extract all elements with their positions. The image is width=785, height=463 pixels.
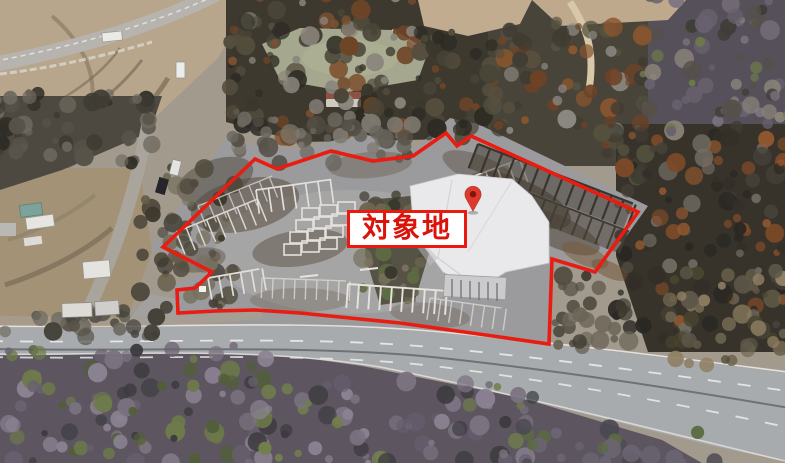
tree-blob: [551, 428, 562, 439]
tree-blob: [526, 391, 539, 404]
tree-blob: [292, 56, 300, 64]
tree-blob: [280, 424, 292, 436]
tree-blob: [61, 122, 73, 134]
tree-blob: [402, 265, 409, 272]
tree-blob: [762, 104, 777, 119]
parking-stall-line: [283, 279, 284, 299]
tree-blob: [558, 110, 577, 129]
tree-blob: [391, 191, 401, 201]
tree-blob: [121, 351, 132, 362]
tree-blob: [325, 455, 333, 463]
tree-blob: [602, 148, 613, 159]
tree-blob: [704, 244, 717, 257]
tree-blob: [659, 187, 667, 195]
tree-blob: [91, 90, 110, 109]
tree-blob: [406, 412, 425, 431]
tree-blob: [33, 311, 48, 326]
tree-blob: [421, 35, 428, 42]
tree-blob: [69, 402, 82, 415]
tree-blob: [618, 144, 630, 156]
tree-blob: [115, 154, 128, 167]
tree-blob: [723, 178, 735, 190]
tree-blob: [294, 450, 301, 457]
tree-blob: [510, 387, 526, 403]
tree-blob: [246, 361, 257, 372]
tree-blob: [390, 34, 397, 41]
tree-blob: [385, 266, 398, 279]
tree-blob: [709, 64, 715, 70]
tree-blob: [751, 194, 761, 204]
tree-blob: [88, 363, 107, 382]
tree-blob: [611, 102, 625, 116]
tree-blob: [157, 257, 174, 274]
tree-blob: [325, 155, 342, 172]
tree-blob: [699, 358, 714, 373]
tree-blob: [95, 414, 107, 426]
tree-blob: [581, 271, 591, 281]
tree-blob: [397, 47, 415, 65]
tree-blob: [275, 454, 283, 462]
tree-blob: [575, 442, 584, 451]
structure: [95, 300, 120, 316]
tree-blob: [778, 159, 785, 166]
parking-stall-line: [272, 278, 273, 298]
tree-blob: [141, 195, 150, 204]
tree-blob: [184, 407, 193, 416]
tree-blob: [746, 173, 760, 187]
tree-blob: [740, 339, 752, 351]
tree-blob: [486, 403, 492, 409]
tree-blob: [651, 28, 664, 41]
tree-blob: [381, 77, 388, 84]
tree-blob: [718, 27, 731, 40]
tree-blob: [428, 440, 434, 446]
tree-blob: [61, 423, 78, 440]
tree-blob: [506, 127, 513, 134]
tree-blob: [606, 46, 617, 57]
parking-stall-line: [338, 281, 339, 301]
tree-blob: [226, 105, 240, 119]
tree-blob: [117, 387, 130, 400]
tree-blob: [222, 79, 238, 95]
tree-blob: [732, 199, 745, 212]
tree-blob: [625, 272, 643, 290]
tree-blob: [762, 219, 771, 228]
tree-blob: [86, 134, 102, 150]
tree-blob: [342, 409, 353, 420]
tree-blob: [423, 445, 438, 460]
tree-blob: [573, 334, 587, 348]
tree-blob: [134, 363, 150, 379]
tree-blob: [558, 281, 567, 290]
tree-blob: [255, 89, 263, 97]
parking-stall-line: [294, 279, 295, 299]
tree-blob: [258, 442, 271, 455]
tree-blob: [649, 145, 656, 152]
tree-blob: [530, 70, 547, 87]
tree-blob: [727, 8, 743, 24]
tree-blob: [721, 355, 730, 364]
tree-blob: [171, 381, 179, 389]
tree-blob: [116, 414, 124, 422]
tree-blob: [698, 294, 710, 306]
tree-blob: [581, 121, 588, 128]
tree-blob: [280, 124, 300, 144]
tree-blob: [209, 346, 224, 361]
tree-blob: [580, 44, 594, 58]
tree-blob: [595, 315, 612, 332]
tree-blob: [689, 80, 696, 87]
tree-blob: [209, 298, 219, 308]
tree-blob: [541, 63, 548, 70]
tree-blob: [611, 335, 619, 343]
tree-blob: [271, 40, 279, 48]
tree-blob: [54, 112, 61, 119]
tree-blob: [131, 282, 150, 301]
tree-blob: [551, 20, 561, 30]
tree-blob: [494, 121, 503, 130]
tree-blob: [128, 407, 137, 416]
tree-blob: [683, 311, 699, 327]
tree-blob: [272, 22, 290, 40]
tree-blob: [734, 275, 753, 294]
tree-blob: [629, 132, 636, 139]
tree-blob: [767, 336, 779, 348]
tree-blob: [457, 375, 474, 392]
tree-blob: [642, 169, 652, 179]
tree-blob: [24, 127, 32, 135]
tree-blob: [713, 176, 719, 182]
site-label: 対象地: [347, 210, 467, 248]
tree-blob: [103, 448, 115, 460]
tree-blob: [741, 36, 749, 44]
tree-blob: [104, 350, 123, 369]
tree-blob: [480, 64, 499, 83]
tree-blob: [263, 57, 270, 64]
tree-blob: [437, 51, 453, 67]
tree-blob: [491, 97, 500, 106]
tree-blob: [750, 82, 756, 88]
tree-blob: [396, 372, 416, 392]
tree-blob: [633, 26, 652, 45]
tree-blob: [164, 342, 179, 357]
tree-blob: [257, 350, 274, 367]
tree-blob: [300, 26, 319, 45]
tree-blob: [666, 153, 685, 172]
tree-blob: [768, 264, 782, 278]
tree-blob: [218, 235, 225, 242]
tree-blob: [672, 100, 683, 111]
tree-blob: [337, 9, 344, 16]
tree-blob: [648, 266, 666, 284]
tree-blob: [42, 382, 55, 395]
tree-blob: [758, 131, 774, 147]
tree-blob: [686, 86, 703, 103]
tree-blob: [434, 414, 450, 430]
tree-blob: [3, 91, 17, 105]
tree-blob: [695, 37, 705, 47]
tree-blob: [93, 392, 113, 412]
tree-blob: [227, 131, 239, 143]
tree-blob: [592, 281, 606, 295]
structure: [62, 302, 92, 317]
tree-blob: [9, 118, 26, 135]
tree-blob: [619, 331, 639, 351]
tree-blob: [237, 13, 255, 31]
tree-blob: [332, 417, 343, 428]
tree-blob: [341, 120, 352, 131]
tree-blob: [350, 430, 366, 446]
tree-blob: [52, 138, 58, 144]
tree-blob: [665, 311, 676, 322]
tree-blob: [228, 57, 237, 66]
tree-blob: [230, 390, 245, 405]
tree-blob: [258, 137, 278, 157]
tree-blob: [742, 96, 759, 113]
tree-blob: [308, 441, 322, 455]
tree-blob: [516, 419, 532, 435]
tree-blob: [763, 58, 775, 70]
tree-blob: [141, 378, 160, 397]
tree-blob: [553, 326, 565, 338]
tree-blob: [656, 143, 668, 155]
tree-blob: [77, 328, 94, 345]
tree-blob: [133, 432, 146, 445]
tree-blob: [494, 383, 502, 391]
tree-blob: [676, 207, 688, 219]
tree-blob: [423, 82, 436, 95]
tree-blob: [309, 99, 324, 114]
structure: [19, 203, 42, 218]
tree-blob: [721, 268, 735, 282]
tree-blob: [113, 323, 126, 336]
tree-blob: [382, 288, 395, 301]
tree-blob: [15, 400, 27, 412]
tree-blob: [644, 79, 655, 90]
tree-blob: [470, 74, 479, 83]
tree-blob: [308, 385, 328, 405]
tree-blob: [503, 102, 515, 114]
tree-blob: [618, 290, 624, 296]
tree-blob: [56, 441, 67, 452]
tree-blob: [195, 159, 214, 178]
tree-blob: [362, 84, 374, 96]
tree-blob: [62, 142, 72, 152]
tree-blob: [685, 167, 703, 185]
tree-blob: [236, 36, 255, 55]
tree-blob: [638, 57, 648, 67]
tree-blob: [749, 5, 762, 18]
tree-blob: [773, 321, 781, 329]
tree-blob: [691, 426, 704, 439]
tree-blob: [22, 90, 36, 104]
tree-blob: [693, 279, 710, 296]
tree-blob: [265, 405, 273, 413]
tree-blob: [604, 18, 623, 37]
tree-blob: [557, 453, 566, 462]
tree-blob: [32, 346, 46, 360]
tree-blob: [742, 89, 749, 96]
tree-blob: [463, 398, 477, 412]
parking-stall-line: [327, 280, 328, 300]
tree-blob: [470, 415, 490, 435]
tree-blob: [730, 170, 738, 178]
tree-blob: [183, 363, 197, 377]
tree-blob: [715, 333, 726, 344]
tree-blob: [724, 220, 732, 228]
tree-blob: [733, 214, 741, 222]
tree-blob: [762, 292, 768, 298]
tree-blob: [683, 38, 691, 46]
tree-blob: [452, 421, 467, 436]
tree-blob: [760, 20, 780, 40]
tree-blob: [432, 65, 440, 73]
tree-blob: [762, 118, 773, 129]
tree-blob: [134, 215, 148, 229]
tree-blob: [485, 381, 492, 388]
tree-blob: [677, 223, 690, 236]
structure: [176, 62, 185, 78]
tree-blob: [359, 64, 366, 71]
tree-blob: [499, 449, 508, 458]
tree-blob: [416, 75, 422, 81]
tree-blob: [736, 54, 745, 63]
tree-blob: [353, 248, 372, 267]
tree-blob: [527, 439, 538, 450]
tree-blob: [359, 191, 369, 201]
tree-blob: [440, 34, 457, 51]
tree-blob: [552, 319, 559, 326]
tree-blob: [132, 94, 142, 104]
tree-blob: [683, 61, 702, 80]
tree-blob: [246, 98, 260, 112]
tree-blob: [646, 102, 656, 112]
tree-blob: [397, 130, 413, 146]
parking-stall-line: [316, 280, 317, 300]
tree-blob: [750, 21, 758, 29]
tree-blob: [362, 23, 381, 42]
tree-blob: [734, 223, 747, 236]
tree-blob: [136, 249, 148, 261]
tree-blob: [731, 79, 742, 90]
tree-blob: [751, 320, 767, 336]
tree-blob: [86, 444, 94, 452]
tree-blob: [558, 84, 567, 93]
tree-blob: [575, 282, 584, 291]
tree-blob: [770, 91, 780, 101]
tree-blob: [131, 330, 139, 338]
tree-blob: [261, 385, 276, 400]
tree-blob: [702, 316, 718, 332]
tree-blob: [411, 267, 419, 275]
tree-blob: [666, 126, 676, 136]
tree-blob: [504, 67, 519, 82]
tree-blob: [615, 158, 634, 177]
tree-blob: [415, 257, 426, 268]
aerial-map-view: 対象地: [0, 0, 785, 463]
tree-blob: [448, 29, 455, 36]
tree-blob: [459, 120, 467, 128]
tree-blob: [282, 383, 293, 394]
tree-blob: [59, 402, 66, 409]
tree-blob: [113, 435, 127, 449]
parking-stall-line: [261, 278, 262, 298]
tree-blob: [677, 291, 687, 301]
tree-blob: [572, 82, 580, 90]
tree-blob: [170, 435, 177, 442]
tree-blob: [512, 51, 528, 67]
tree-blob: [583, 296, 597, 310]
tree-blob: [211, 432, 222, 443]
tree-blob: [753, 274, 765, 286]
tree-blob: [584, 85, 597, 98]
tree-blob: [267, 1, 286, 20]
tree-blob: [437, 386, 455, 404]
tree-blob: [384, 108, 394, 118]
tree-blob: [622, 262, 633, 273]
tree-blob: [680, 266, 693, 279]
tree-blob: [307, 116, 326, 135]
tree-blob: [179, 178, 195, 194]
tree-blob: [387, 117, 403, 133]
tree-blob: [249, 57, 256, 64]
tree-blob: [41, 430, 47, 436]
tree-blob: [209, 249, 217, 257]
tree-blob: [652, 209, 669, 226]
tree-blob: [230, 26, 239, 35]
tree-blob: [386, 47, 396, 57]
tree-blob: [753, 287, 760, 294]
tree-blob: [320, 17, 328, 25]
tree-blob: [750, 73, 758, 81]
tree-blob: [157, 381, 167, 391]
tree-blob: [520, 406, 529, 415]
tree-blob: [253, 116, 264, 127]
tree-blob: [383, 88, 390, 95]
tree-blob: [521, 116, 529, 124]
tree-blob: [59, 96, 76, 113]
tree-blob: [593, 124, 611, 142]
tree-blob: [440, 83, 446, 89]
tree-blob: [144, 324, 161, 341]
tree-blob: [43, 148, 57, 162]
tree-blob: [44, 322, 63, 341]
structure: [199, 286, 206, 292]
tree-blob: [742, 161, 756, 175]
tree-blob: [743, 190, 752, 199]
tree-blob: [340, 36, 359, 55]
tree-blob: [283, 77, 300, 94]
tree-blob: [218, 374, 229, 385]
tree-blob: [602, 140, 611, 149]
tree-blob: [103, 424, 111, 432]
tree-blob: [12, 137, 29, 154]
tree-blob: [635, 317, 651, 333]
tree-blob: [187, 380, 199, 392]
tree-blob: [750, 62, 762, 74]
tree-blob: [652, 50, 664, 62]
tree-blob: [670, 275, 679, 284]
tree-blob: [597, 442, 609, 454]
tree-blob: [0, 415, 18, 433]
tree-blob: [695, 15, 713, 33]
tree-blob: [327, 112, 342, 127]
tree-blob: [248, 377, 258, 387]
tree-blob: [736, 249, 744, 257]
tree-blob: [499, 416, 511, 428]
tree-blob: [403, 297, 411, 305]
tree-blob: [621, 184, 634, 197]
